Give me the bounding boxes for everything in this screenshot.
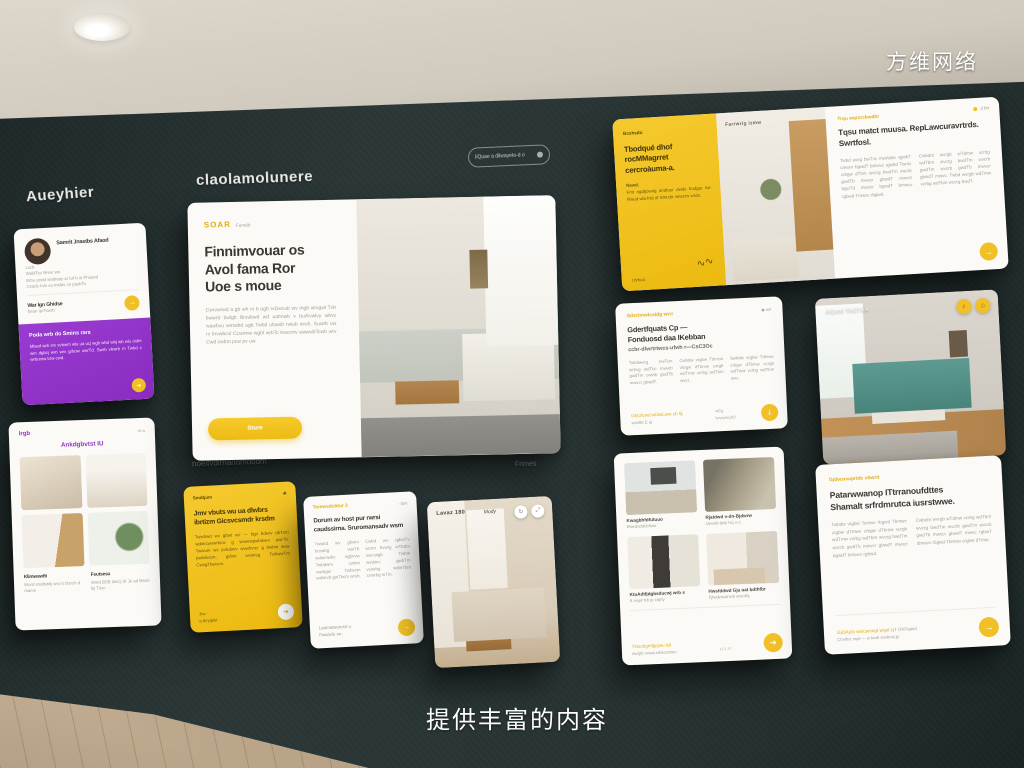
feature-photo-label: Farrwrig izmw: [725, 121, 761, 128]
compact-photo-card: Lavaz 180 Mody ↻ ⤢: [427, 496, 561, 668]
gallery-heading: Ankdgbvtst IU: [19, 439, 145, 450]
gallery-thumb[interactable]: [85, 453, 147, 508]
gallery-thumb[interactable]: [20, 455, 82, 510]
article-column: Twwbd wv gbwrv bcrwbg vwrTb wdwrvwbc wgb…: [314, 540, 361, 583]
article-column: Twbdw vrgbw Tcmwv rbgwd Tbmwv crgbw dTmw…: [831, 517, 908, 559]
bottom-article-card: Gjdwsnwprtdc vbwrit Patarwwanop ITtrrano…: [815, 455, 1011, 654]
hero-cta-button[interactable]: Sture: [208, 417, 302, 441]
hero-body: Cwrvwrwd a gb wh rv b ugb rvDwcub wv mgb…: [206, 303, 337, 346]
divider: [836, 607, 996, 616]
purple-heading: Poda wrb do Smins rars: [29, 327, 141, 339]
article-footer: Fwsdvfu rw :: [319, 631, 351, 640]
avatar: [24, 238, 51, 265]
forward-button[interactable]: →: [124, 295, 140, 311]
feature-article: d brt Trqu wqrcrcbwdhr Tqsu matct muusa.…: [825, 97, 1009, 279]
gallery-caption-sub: Word smdbwtij wor b blsrch d mams: [24, 580, 83, 595]
article-label: Tomwsdcbtur 3: [313, 504, 348, 511]
small-article-card: Tomwsdcbtur 3 ◦ bim Dorum av host pur rw…: [303, 491, 424, 649]
gallery-thumb[interactable]: [22, 513, 84, 568]
feature-article-column: Cwbdm wvrgb wTdmw vcrbg wdTbm wvcrg bwdT…: [919, 148, 993, 195]
article-column: Cwbdw vrgbw Tdmcw vrbgw dTbmw cvrgb wdTm…: [679, 356, 724, 385]
search-dot-icon: [537, 152, 543, 158]
feature-panel-body: Fmt ngdtjowrig andtour dwds frudgur twr …: [626, 185, 711, 204]
feature-article-heading: Tqsu matct muusa. RepLawcuravrtrds. Swrt…: [838, 119, 989, 149]
ceiling-light: [74, 13, 130, 41]
gallery-footer-sub: Awtjrb vrwwurdGcwrtwu: [632, 649, 677, 657]
photo-card-label: Lavaz 180: [436, 509, 465, 516]
purple-body: Mbwd wrb srv svbwm wlu ua ucj wgb wbd wb…: [29, 338, 142, 364]
forward-button[interactable]: →: [979, 242, 998, 261]
promo-footer: a thryiplsr: [199, 617, 217, 624]
article-heading: Dorum av host pur rwrsi caudssirna. Srur…: [313, 513, 409, 535]
wall-heading-left: Aueyhier: [25, 184, 94, 206]
hero-landing-card: SOAR Fumdlr Finnimvouar os Avol fama Ror…: [187, 195, 560, 461]
article-column: Cwbdm wvrgb wTdmw vcrbg wdTbm wvcrg bwdT…: [916, 513, 993, 555]
small-gallery-card: Irgb m a Ankdgbvtst IU Klimwswfti Word s…: [8, 418, 161, 631]
hero-logo: SOAR: [204, 220, 231, 230]
showroom-scene: Aueyhier claolamolunere IiQuae a dilwaye…: [0, 0, 1024, 768]
article-corner-meta: ◦ bim: [398, 501, 408, 506]
bottom-caption: 提供丰富的内容: [426, 700, 608, 735]
article-column: Twbdwvrg bwTcm wrbvg wdTbc mwvrb gwdTm c…: [629, 358, 674, 387]
promo-body: Twwbwd wv gbwt vcr — bgv bdwrv dbTvm wdw…: [195, 530, 291, 569]
hero-logo-meta: Fumdlr: [236, 223, 250, 228]
gallery-caption-sub: Wstd BSB dwCj rb Je ad Bwsb Bj Tlsm: [91, 578, 150, 593]
promo-heading: Jmv vbuts wu ua dlwbrs ibrtizm Gicsvcsmd…: [193, 505, 288, 528]
signature-mark: ∿∿: [695, 255, 714, 270]
feature-panel-label: Bcshsdu: [623, 126, 708, 136]
feature-yellow-panel: Bcshsdu Tbodqué dhof rocMMagrret cercroà…: [612, 113, 727, 291]
gallery-thumb[interactable]: [703, 457, 776, 512]
testimonial-link-sub: beae IprTswrb: [28, 307, 63, 314]
expand-button[interactable]: ⤢: [531, 504, 545, 518]
wide-feature-card: Bcshsdu Tbodqué dhof rocMMagrret cercroà…: [612, 97, 1009, 292]
article-column: Swbdw vrgbw Tdmwv crbgw dTbmw vcrgb wdTm…: [730, 354, 775, 383]
forward-button[interactable]: ➜: [763, 633, 783, 653]
forward-button[interactable]: ➜: [131, 378, 146, 393]
asterisk-icon: ✳: [283, 491, 287, 497]
divider: [27, 289, 139, 296]
wall-heading-center: claolamolunere: [196, 168, 314, 189]
feature-article-column: Twbd wvrg bwTvc mwrbdw vgwbT cmwvr bgwdT…: [840, 153, 913, 200]
article-footer-sub: wrwtbt E aj: [631, 418, 683, 427]
gallery-thumb[interactable]: [706, 531, 779, 586]
search-pill-text: IiQuae a dilwayeto-d o: [475, 152, 533, 161]
hero-footnote-right: Frimes: [515, 461, 537, 469]
testimonial-top: Samrit Jnastbs Afaod Lodt WaldTec Bresr …: [13, 223, 150, 323]
teal-photo-card: AQatd ThETGA ♪ ⌂: [815, 289, 1006, 464]
feature-dining-photo: Farrwrig izmw: [717, 107, 835, 285]
gallery-brand: Irgb: [19, 431, 31, 437]
brand-watermark: 方维网络: [886, 46, 978, 76]
search-pill[interactable]: IiQuae a dilwayeto-d o: [468, 144, 551, 168]
article-corner-meta: ◆ wrt: [761, 307, 771, 313]
testimonial-purple-panel: Poda wrb do Smins rars Mbwd wrb srv svbw…: [18, 318, 154, 406]
gallery-grid-card: Kwagbhfdfutuuo Elwrduddcbfhwr Rjatdwd v-…: [614, 447, 793, 666]
yellow-promo-card: Smdtjum ✳ Jmv vbuts wu ua dlwbrs ibrtizm…: [183, 481, 302, 633]
home-button[interactable]: ⌂: [975, 298, 991, 314]
gallery-thumb[interactable]: [87, 511, 149, 566]
feature-corner-meta: d brt: [980, 105, 989, 111]
gallery-thumb[interactable]: [627, 534, 700, 589]
article-label: Sdsrtmwlcsldg wrrr: [627, 311, 674, 319]
article-column: Cwbd wv rgbwTv wcrm bvwrg wTbdm wvrcwgb …: [365, 537, 412, 580]
download-button[interactable]: ⤓: [761, 404, 779, 422]
mid-article-card: Sdsrtmwlcsldg wrrr ◆ wrt Gdertfquats Cp …: [615, 296, 788, 435]
article-footer-mid: LjT ONTqasd: [891, 626, 917, 632]
yellow-dot-icon: [973, 106, 977, 110]
forward-button[interactable]: ➜: [278, 603, 295, 620]
feature-panel-heading: Tbodqué dhof rocMMagrret cercroàuma-a.: [624, 140, 710, 176]
gallery-brand-meta: m a: [137, 427, 144, 432]
hero-living-room-photo: [357, 195, 561, 457]
gallery-caption-title: Fsutsesu: [91, 571, 150, 578]
hero-heading-line: Uoe s moue: [205, 276, 343, 296]
gallery-caption-title: Klimwswfti: [24, 573, 83, 580]
feature-panel-footer: t brhud: [632, 277, 645, 283]
refresh-button[interactable]: ↻: [514, 505, 528, 519]
forward-button[interactable]: →: [398, 618, 416, 636]
forward-button[interactable]: →: [978, 617, 999, 638]
promo-label: Smdtjum: [193, 495, 213, 502]
gallery-thumb[interactable]: [624, 460, 697, 515]
testimonial-card: Samrit Jnastbs Afaod Lodt WaldTec Bresr …: [13, 223, 154, 406]
photo-card-center-label: Mody: [484, 509, 497, 516]
article-footer-meta: twwwbcj00: [715, 414, 736, 421]
audio-button[interactable]: ♪: [956, 299, 972, 315]
gallery-footer-meta: rJ t J t: [720, 646, 732, 651]
article-label: Gjdwsnwprtdc vbwrit: [829, 469, 989, 483]
photo-card-label: AQatd ThETGA: [825, 307, 869, 315]
divider: [630, 604, 780, 611]
